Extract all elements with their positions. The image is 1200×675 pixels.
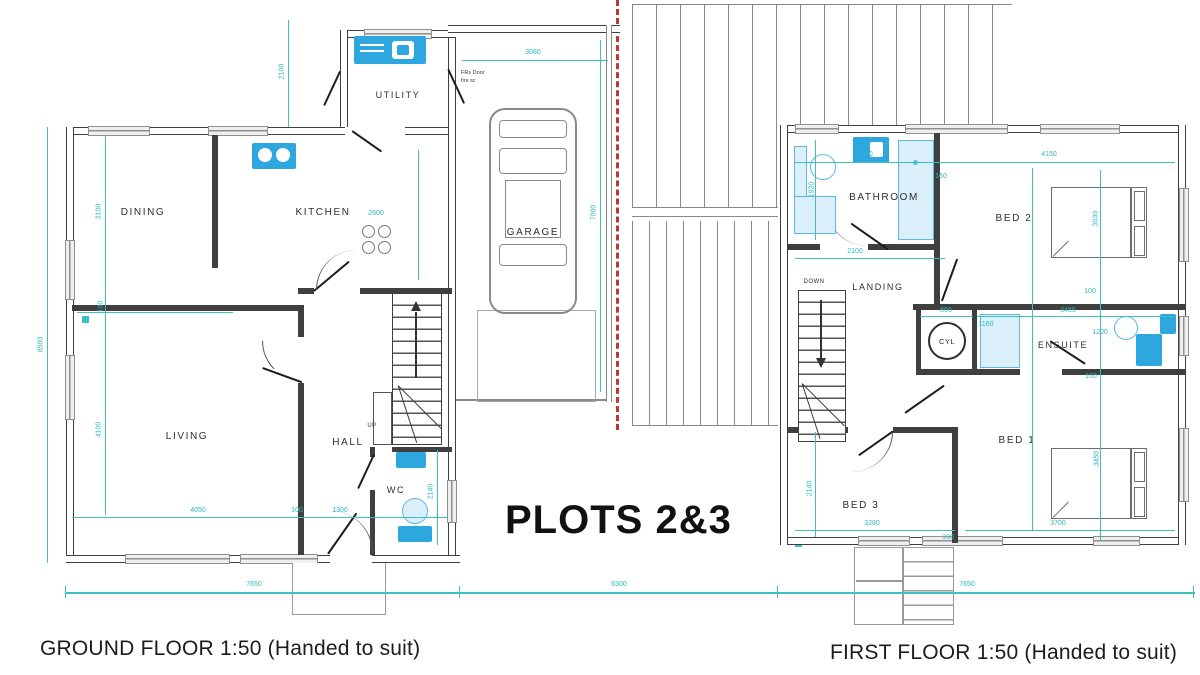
dim-ensuite-depth: 1200 [1080, 329, 1120, 336]
dim-wall2: 100 [281, 507, 313, 514]
hob-ring-icon [378, 225, 391, 238]
room-label-landing: LANDING [818, 282, 938, 292]
car-hood [499, 120, 567, 138]
wall [780, 125, 788, 545]
dim-house-depth: 8500 [38, 325, 45, 365]
window [447, 480, 457, 523]
dim-dining-depth: 3100 [96, 192, 103, 232]
wall [405, 127, 448, 135]
wc-cistern-icon [398, 526, 432, 542]
dim-shower-width: 1160 [966, 321, 1006, 328]
dim-wall-b: 100 [1075, 373, 1107, 380]
ensuite-basin-icon [1114, 316, 1138, 340]
room-label-bed3: BED 3 [811, 500, 911, 511]
dim-bed1-depth: 3450 [1094, 439, 1101, 479]
dim-kitchen-units: 2600 [356, 210, 396, 217]
plots-title: PLOTS 2&3 [505, 498, 732, 543]
bed1-pillow [1134, 487, 1145, 517]
dim-tick [459, 586, 460, 598]
external-stair-line [856, 580, 902, 582]
door-leaf-utility-garden [323, 71, 341, 106]
dim-hall-width: 1300 [320, 507, 360, 514]
bed2-pillow [1134, 191, 1145, 221]
room-label-wc: WC [376, 485, 416, 495]
dim-line [965, 530, 1175, 531]
utility-sink-bowl-inner [397, 45, 409, 55]
roof-hatch-lower [632, 221, 778, 426]
bed1-headboard-line [1130, 449, 1132, 518]
room-label-living: LIVING [137, 431, 237, 442]
dim-line [795, 162, 1175, 163]
dim-line [418, 150, 419, 280]
overall-dim-line [65, 592, 1195, 594]
room-label-bathroom: BATHROOM [824, 192, 944, 203]
dim-bed2-width: 4150 [1029, 151, 1069, 158]
dim-line [977, 316, 1175, 317]
window [795, 124, 839, 134]
wall [66, 127, 74, 563]
roof-ridge-line [632, 216, 778, 217]
stair-direction-arrow [415, 312, 417, 378]
hob-ring-icon [378, 241, 391, 254]
bed1-pillow [1134, 452, 1145, 482]
wc-basin-icon [396, 452, 426, 468]
wall-kitchen-hall [298, 288, 314, 294]
room-label-ensuite: ENSUITE [1003, 340, 1123, 350]
dim-cyl-width: 865 [926, 307, 966, 314]
window [905, 124, 1008, 134]
dim-utility-depth: 2100 [279, 52, 286, 92]
ground-floor-caption: GROUND FLOOR 1:50 (Handed to suit) [40, 637, 420, 661]
room-label-bed1: BED 1 [967, 435, 1067, 446]
wall-bathroom [868, 244, 940, 250]
dim-tick [1193, 586, 1194, 598]
wc-toilet-icon [402, 498, 428, 524]
utility-drainer-line [360, 50, 384, 52]
dim-first-overall: 7850 [947, 581, 987, 588]
window [65, 240, 75, 300]
wall-garage [448, 25, 620, 33]
dim-wall: 100 [98, 291, 105, 323]
hob-ring-icon [362, 225, 375, 238]
window [1040, 124, 1120, 134]
dim-tick [65, 586, 66, 598]
window [858, 536, 910, 546]
bathroom-shower-icon [898, 140, 934, 240]
door-leaf-bed2 [941, 258, 959, 301]
dim-line [72, 517, 448, 518]
roof-hatch-upper [632, 4, 1012, 126]
ensuite-toilet-icon [1136, 334, 1162, 366]
dim-offset: 160 [925, 173, 957, 180]
dim-landing-width: 2100 [835, 248, 875, 255]
room-label-garage: GARAGE [483, 227, 583, 238]
bed2-headboard-line [1130, 188, 1132, 257]
cylinder-icon: CYL [928, 322, 966, 360]
car-windshield [499, 148, 567, 174]
dim-ensuite-width: 3455 [1048, 307, 1088, 314]
dim-garage-depth: 7000 [591, 193, 598, 233]
stair-direction-arrow [820, 300, 822, 360]
dim-bed3-depth: 2140 [807, 469, 814, 509]
window [88, 126, 150, 136]
dim-wc-depth: 2140 [428, 472, 435, 512]
dim-living-depth: 4100 [96, 410, 103, 450]
door-note-line1: FRs Door [461, 70, 485, 77]
wall [372, 555, 460, 563]
bed2-pillow [1134, 226, 1145, 256]
dim-line [288, 20, 289, 127]
room-label-hall: HALL [308, 437, 388, 448]
dim-bathroom-depth: 1920 [809, 170, 816, 210]
stair-arrow-head [816, 358, 826, 368]
window [125, 554, 230, 564]
kitchen-sink-bowl [276, 148, 290, 162]
car-rear-window [499, 244, 567, 266]
dim-ground-overall: 7650 [234, 581, 274, 588]
wall-garage-party [606, 25, 612, 402]
stairs-down-label: DOWN [796, 279, 832, 285]
wall-cyl-left [916, 310, 921, 372]
wall-ensuite-bottom [916, 369, 1020, 375]
dim-line [795, 258, 945, 259]
window [1179, 428, 1189, 502]
kitchen-sink-bowl [258, 148, 272, 162]
dim-garage-width: 3080 [513, 49, 553, 56]
door-note-line2: fire sc [461, 78, 476, 85]
wall-utility [340, 30, 348, 127]
garage-apron [477, 310, 596, 402]
roof-ridge-line [632, 207, 778, 208]
wall-bed3-bed1 [952, 427, 958, 543]
window [1179, 316, 1189, 356]
door-leaf-bed1 [904, 385, 945, 414]
dim-marker [82, 316, 89, 323]
dim-wall-c: 100 [932, 534, 964, 541]
dim-line [47, 127, 48, 563]
dim-wall-a: 100 [1074, 288, 1106, 295]
external-stair-treads [904, 548, 953, 624]
wall-hall-living [298, 305, 304, 337]
hob-ring-icon [362, 241, 375, 254]
stairs-up-label: UP [360, 423, 384, 429]
wall-bed3-top [893, 427, 958, 433]
dim-bathroom-width: 2080 [845, 151, 885, 158]
door-leaf-utility-kitchen [351, 130, 382, 153]
first-floor-caption: FIRST FLOOR 1:50 (Handed to suit) [830, 641, 1177, 665]
dim-line [437, 450, 438, 545]
dim-plot-gap: 6300 [599, 581, 639, 588]
dim-line [815, 432, 816, 537]
stair-arrow-head [411, 301, 421, 311]
door-arc-bed3 [851, 432, 893, 472]
wall-bathroom [788, 244, 820, 250]
wall-hall-living [298, 383, 304, 555]
dim-bed2-depth: 3030 [1093, 199, 1100, 239]
room-label-bed2: BED 2 [964, 213, 1064, 224]
dim-line [795, 530, 955, 531]
dim-tick [777, 586, 778, 598]
door-arc-kitchen [316, 250, 356, 290]
room-label-utility: UTILITY [348, 90, 448, 100]
party-wall-line [616, 0, 619, 430]
roof-hatch-upper-left [632, 125, 778, 208]
window [65, 355, 75, 420]
dim-line [105, 135, 106, 515]
door-arc-living [262, 341, 302, 381]
utility-drainer-line [360, 44, 384, 46]
dim-bed1-width: 3700 [1038, 520, 1078, 527]
room-label-dining: DINING [93, 207, 193, 218]
window [1179, 188, 1189, 262]
door-leaf-wc [357, 454, 375, 489]
porch-outline [292, 563, 386, 615]
dim-living-width: 4050 [178, 507, 218, 514]
dim-bed3-width: 3280 [852, 520, 892, 527]
floor-plan-drawing: DINING KITCHEN UTILITY GARAGE LIVING HAL… [0, 0, 1200, 675]
dim-line [600, 40, 601, 392]
dim-line [1032, 168, 1033, 530]
dim-line [920, 316, 973, 317]
wall-dining-kitchen [212, 135, 218, 268]
dim-line [1100, 170, 1101, 540]
dim-line [462, 60, 608, 61]
wall-cyl-right [972, 310, 977, 372]
